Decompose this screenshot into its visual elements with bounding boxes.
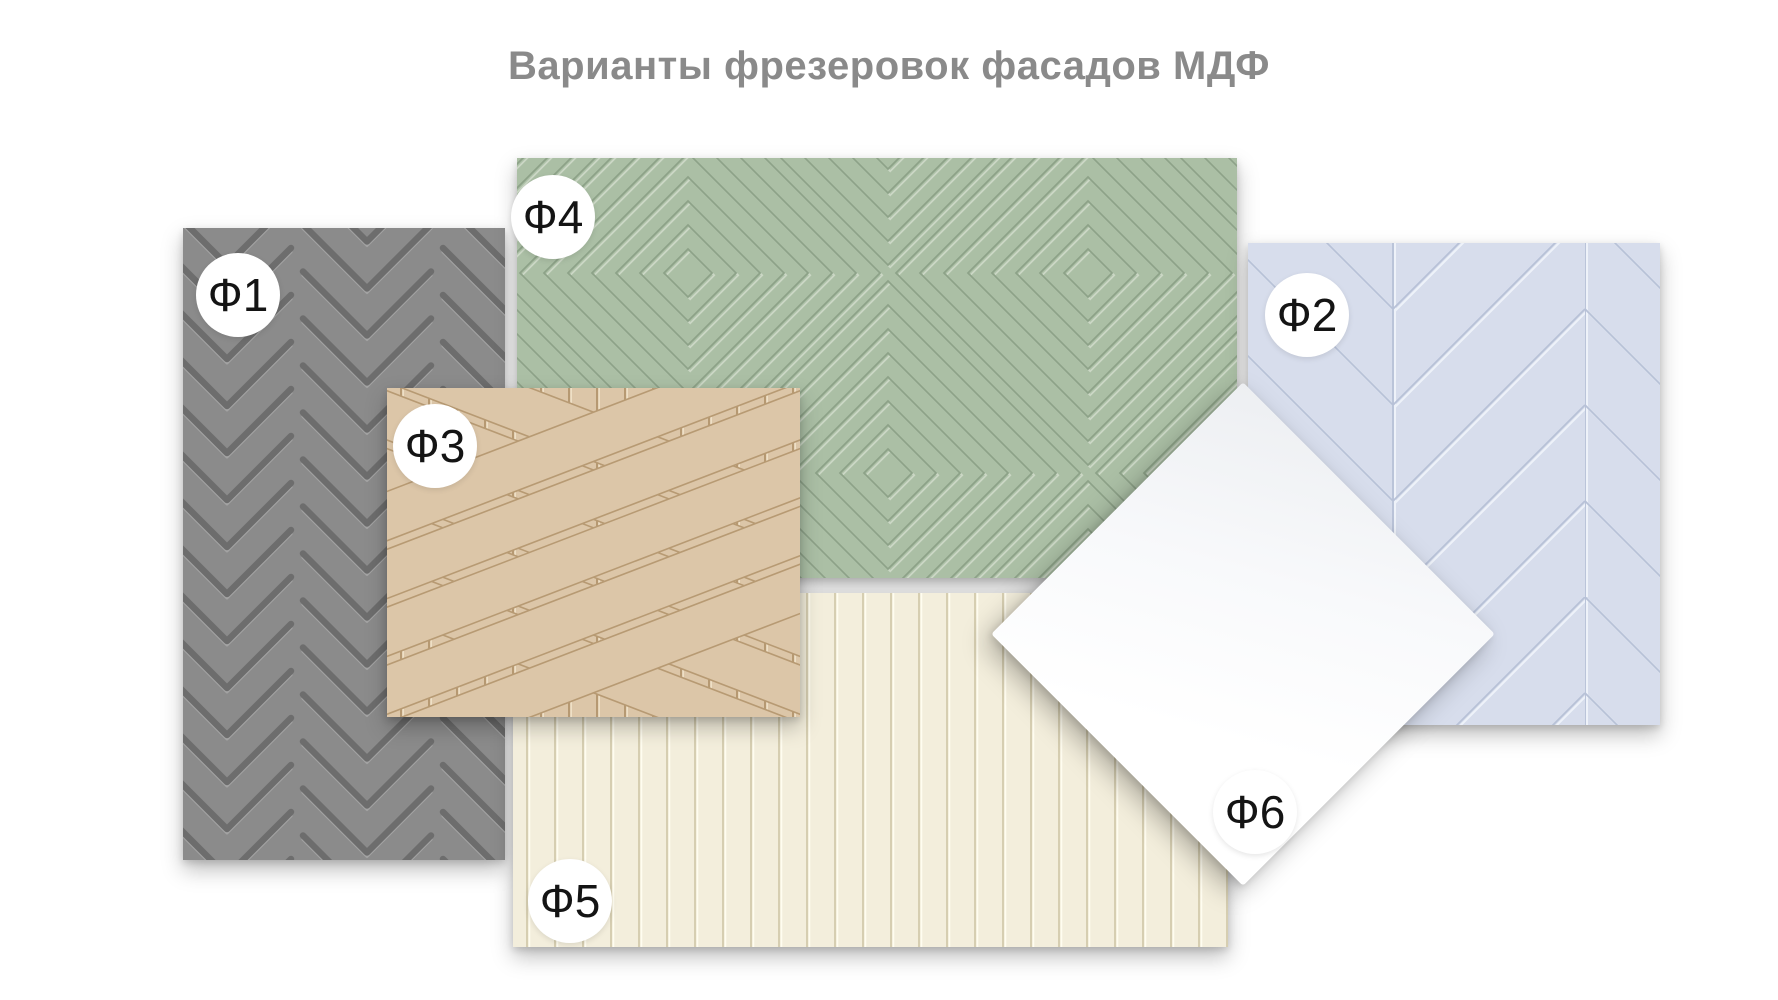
facade-milling-variants-board: Варианты фрезеровок фасадов МДФ [0,0,1778,1000]
label-text-f6: Ф6 [1225,785,1286,839]
label-text-f2: Ф2 [1277,288,1338,342]
label-text-f1: Ф1 [208,268,269,322]
label-badge-f3: Ф3 [393,404,477,488]
label-badge-f5: Ф5 [528,859,612,943]
label-text-f4: Ф4 [523,190,584,244]
label-badge-f6: Ф6 [1213,770,1297,854]
page-title: Варианты фрезеровок фасадов МДФ [0,44,1778,89]
label-text-f5: Ф5 [540,874,601,928]
label-badge-f4: Ф4 [511,175,595,259]
label-badge-f1: Ф1 [196,253,280,337]
label-badge-f2: Ф2 [1265,273,1349,357]
label-text-f3: Ф3 [405,419,466,473]
